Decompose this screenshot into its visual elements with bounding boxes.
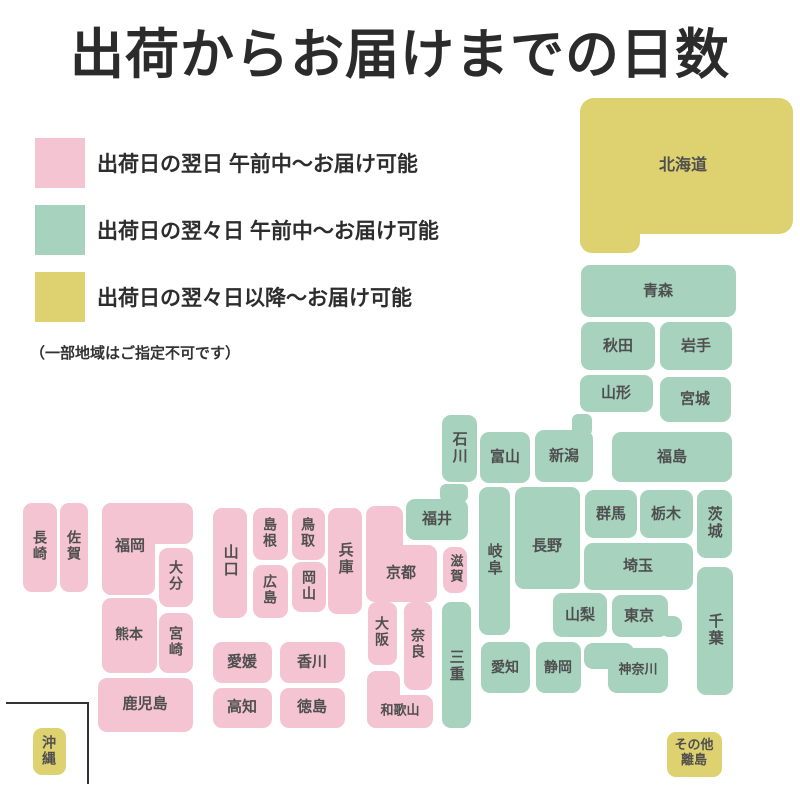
prefecture-hiroshima-label: 広島 bbox=[262, 574, 278, 606]
prefecture-tokyo-shape bbox=[660, 616, 682, 637]
prefecture-tottori-label: 鳥取 bbox=[300, 517, 316, 549]
prefecture-gunma-label: 群馬 bbox=[596, 505, 626, 522]
prefecture-saga-label: 佐賀 bbox=[66, 530, 82, 562]
prefecture-mie-label: 三重 bbox=[447, 649, 464, 683]
prefecture-osaka-label: 大阪 bbox=[374, 616, 390, 648]
prefecture-fukui-label: 福井 bbox=[422, 510, 452, 527]
prefecture-nagano-label: 長野 bbox=[532, 537, 562, 554]
prefecture-aomori-label: 青森 bbox=[643, 282, 673, 299]
prefecture-kyoto-label: 京都 bbox=[386, 564, 416, 581]
prefecture-ishikawa-label: 石川 bbox=[450, 431, 467, 465]
prefecture-niigata-shape bbox=[572, 414, 592, 436]
prefecture-other-islands-label: その他 離島 bbox=[674, 738, 713, 768]
prefecture-fukuoka-label: 福岡 bbox=[115, 537, 145, 554]
prefecture-yamanashi-label: 山梨 bbox=[565, 606, 595, 623]
prefecture-tochigi-label: 栃木 bbox=[651, 505, 681, 522]
prefecture-tokushima-label: 徳島 bbox=[297, 698, 327, 715]
prefecture-saitama-label: 埼玉 bbox=[623, 557, 653, 574]
prefecture-kagawa-label: 香川 bbox=[297, 653, 327, 670]
prefecture-shizuoka-label: 静岡 bbox=[544, 659, 572, 675]
prefecture-hyogo-label: 兵庫 bbox=[336, 542, 353, 576]
prefecture-miyazaki-label: 宮崎 bbox=[168, 626, 184, 658]
prefecture-fukushima-label: 福島 bbox=[657, 448, 687, 465]
prefecture-fukui-shape bbox=[440, 484, 468, 502]
prefecture-yamaguchi-label: 山口 bbox=[221, 544, 238, 578]
prefecture-gifu-label: 岐阜 bbox=[485, 543, 502, 577]
prefecture-okayama-label: 岡山 bbox=[301, 570, 317, 602]
prefecture-niigata-label: 新潟 bbox=[549, 447, 579, 464]
prefecture-hokkaido-label: 北海道 bbox=[659, 157, 707, 175]
prefecture-shimane-label: 島根 bbox=[262, 517, 278, 549]
prefecture-nagasaki-label: 長崎 bbox=[32, 530, 48, 562]
prefecture-oita-label: 大分 bbox=[168, 560, 184, 592]
prefecture-kagoshima-label: 鹿児島 bbox=[122, 695, 167, 712]
prefecture-tokyo-label: 東京 bbox=[624, 607, 654, 624]
prefecture-yamagata-label: 山形 bbox=[601, 384, 631, 401]
prefecture-okinawa-label: 沖縄 bbox=[41, 735, 57, 767]
prefecture-chiba-label: 千葉 bbox=[706, 613, 723, 647]
prefecture-shiga-label: 滋賀 bbox=[448, 554, 463, 584]
prefecture-hokkaido-shape bbox=[580, 200, 640, 253]
prefecture-kochi-label: 高知 bbox=[227, 698, 257, 715]
prefecture-iwate-label: 岩手 bbox=[681, 337, 711, 354]
okinawa-inset-frame-right bbox=[87, 702, 89, 784]
prefecture-wakayama-label: 和歌山 bbox=[380, 704, 419, 719]
prefecture-akita-label: 秋田 bbox=[603, 337, 633, 354]
prefecture-toyama-label: 富山 bbox=[490, 448, 520, 465]
prefecture-miyagi-label: 宮城 bbox=[680, 390, 710, 407]
prefecture-nara-label: 奈良 bbox=[410, 628, 426, 660]
prefecture-ibaraki-label: 茨城 bbox=[705, 506, 722, 540]
prefecture-kumamoto-label: 熊本 bbox=[115, 626, 143, 642]
prefecture-kanagawa-label: 神奈川 bbox=[618, 663, 657, 678]
prefecture-aichi-label: 愛知 bbox=[491, 659, 519, 675]
okinawa-inset-frame-top bbox=[6, 702, 89, 704]
prefecture-ehime-label: 愛媛 bbox=[227, 653, 257, 670]
japan-prefecture-map: 北海道青森秋田岩手山形宮城新潟福島石川富山群馬栃木茨城福井岐阜長野埼玉東京千葉山… bbox=[0, 0, 800, 800]
